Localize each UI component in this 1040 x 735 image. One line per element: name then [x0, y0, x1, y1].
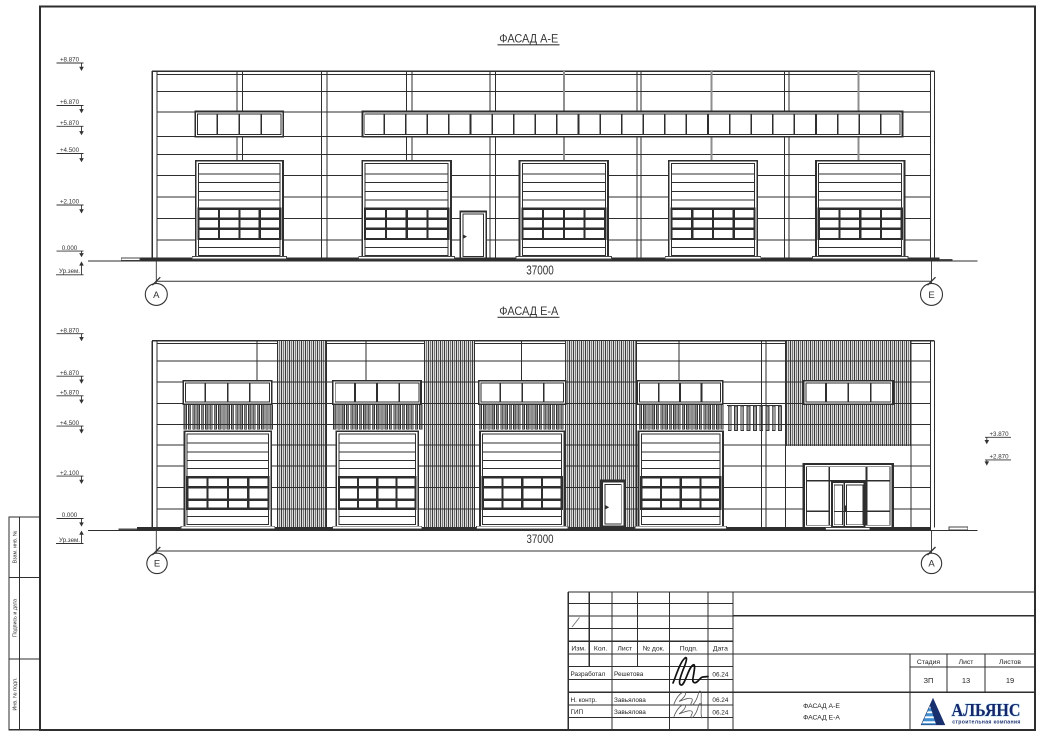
svg-text:37000: 37000: [526, 263, 554, 278]
svg-text:06.24: 06.24: [712, 671, 728, 678]
svg-text:АЛЬЯНС: АЛЬЯНС: [952, 700, 1021, 720]
svg-text:Инв. № подл.: Инв. № подл.: [13, 678, 19, 711]
svg-text:Лист: Лист: [617, 645, 632, 652]
svg-text:ФАСАД А-Е: ФАСАД А-Е: [499, 31, 558, 45]
svg-text:ФАСАД Е-А: ФАСАД Е-А: [803, 715, 840, 722]
svg-text:Изм.: Изм.: [571, 645, 586, 652]
svg-text:А: А: [153, 290, 160, 301]
svg-text:Завьялова: Завьялова: [614, 709, 646, 716]
svg-text:Разработал: Разработал: [571, 670, 606, 678]
svg-text:06.24: 06.24: [712, 710, 728, 717]
svg-text:Дата: Дата: [713, 645, 728, 652]
svg-text:Взам. инв. №: Взам. инв. №: [13, 530, 19, 563]
svg-text:Стадия: Стадия: [917, 659, 940, 666]
svg-text:Лист: Лист: [959, 659, 974, 666]
svg-text:Подп.: Подп.: [680, 645, 698, 652]
svg-text:ФАСАД Е-А: ФАСАД Е-А: [499, 304, 558, 318]
svg-text:№ док.: № док.: [643, 645, 665, 652]
svg-text:Н. контр.: Н. контр.: [571, 697, 598, 704]
svg-text:ЗП: ЗП: [924, 676, 934, 685]
svg-text:Завьялова: Завьялова: [614, 697, 646, 704]
svg-text:19: 19: [1006, 676, 1014, 685]
svg-text:Решетова: Решетова: [614, 671, 644, 678]
svg-text:Е: Е: [154, 559, 160, 570]
svg-text:06.24: 06.24: [712, 697, 728, 704]
svg-text:ГИП: ГИП: [571, 709, 584, 716]
svg-text:Кол.: Кол.: [594, 645, 608, 652]
svg-text:А: А: [928, 559, 935, 570]
svg-text:Е: Е: [928, 290, 934, 301]
svg-text:строительная компания: строительная компания: [952, 719, 1020, 725]
svg-text:Ур.зем.: Ур.зем.: [59, 537, 80, 544]
svg-text:37000: 37000: [527, 532, 554, 546]
svg-text:Листов: Листов: [999, 659, 1021, 666]
svg-text:Ур.зем.: Ур.зем.: [59, 268, 80, 275]
svg-text:Подпись и дата: Подпись и дата: [13, 599, 19, 637]
svg-text:ФАСАД А-Е: ФАСАД А-Е: [803, 703, 840, 710]
svg-text:13: 13: [962, 676, 970, 685]
